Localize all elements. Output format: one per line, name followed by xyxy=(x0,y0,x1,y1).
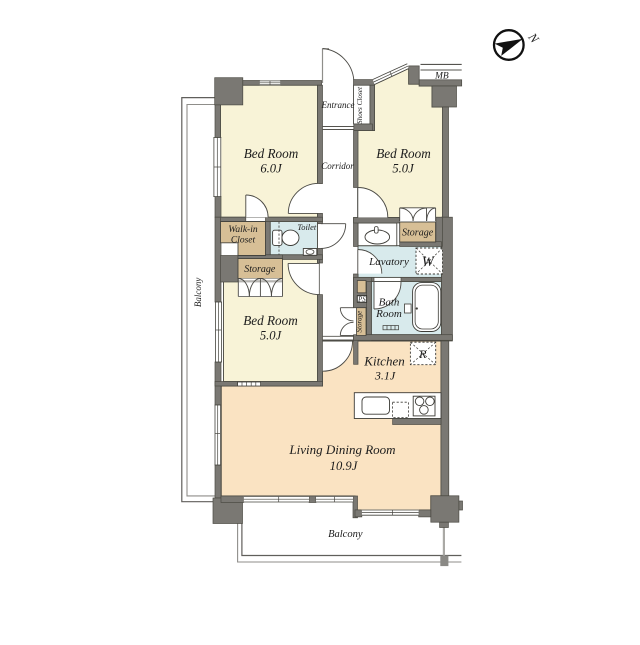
svg-text:6.0J: 6.0J xyxy=(260,162,283,176)
svg-text:Shoes Closet: Shoes Closet xyxy=(356,86,364,124)
svg-text:Bath: Bath xyxy=(379,296,400,308)
svg-text:5.0J: 5.0J xyxy=(260,329,283,343)
svg-text:Toilet: Toilet xyxy=(297,223,316,232)
svg-text:R: R xyxy=(418,347,427,361)
svg-text:Bed Room: Bed Room xyxy=(376,146,431,161)
svg-text:Balcony: Balcony xyxy=(193,278,203,308)
svg-text:Room: Room xyxy=(375,308,402,320)
svg-text:W: W xyxy=(422,254,436,270)
svg-text:PS: PS xyxy=(357,297,366,304)
svg-text:Kitchen: Kitchen xyxy=(363,354,404,369)
svg-text:Bed Room: Bed Room xyxy=(244,146,299,161)
svg-text:5.0J: 5.0J xyxy=(392,162,415,176)
svg-text:Lavatory: Lavatory xyxy=(368,256,409,268)
svg-text:Closet: Closet xyxy=(231,235,256,245)
svg-text:Entrance: Entrance xyxy=(321,100,355,110)
svg-text:Bed Room: Bed Room xyxy=(243,313,298,328)
svg-text:Storage: Storage xyxy=(402,228,434,239)
svg-text:Balcony: Balcony xyxy=(328,529,363,540)
svg-text:Walk-in: Walk-in xyxy=(228,225,257,235)
svg-text:Storage: Storage xyxy=(244,264,276,275)
svg-text:3.1J: 3.1J xyxy=(374,369,396,383)
svg-text:10.9J: 10.9J xyxy=(330,459,359,473)
svg-text:Corridor: Corridor xyxy=(321,161,354,171)
svg-text:Living Dining Room: Living Dining Room xyxy=(288,442,395,457)
svg-text:Storage: Storage xyxy=(356,311,364,333)
